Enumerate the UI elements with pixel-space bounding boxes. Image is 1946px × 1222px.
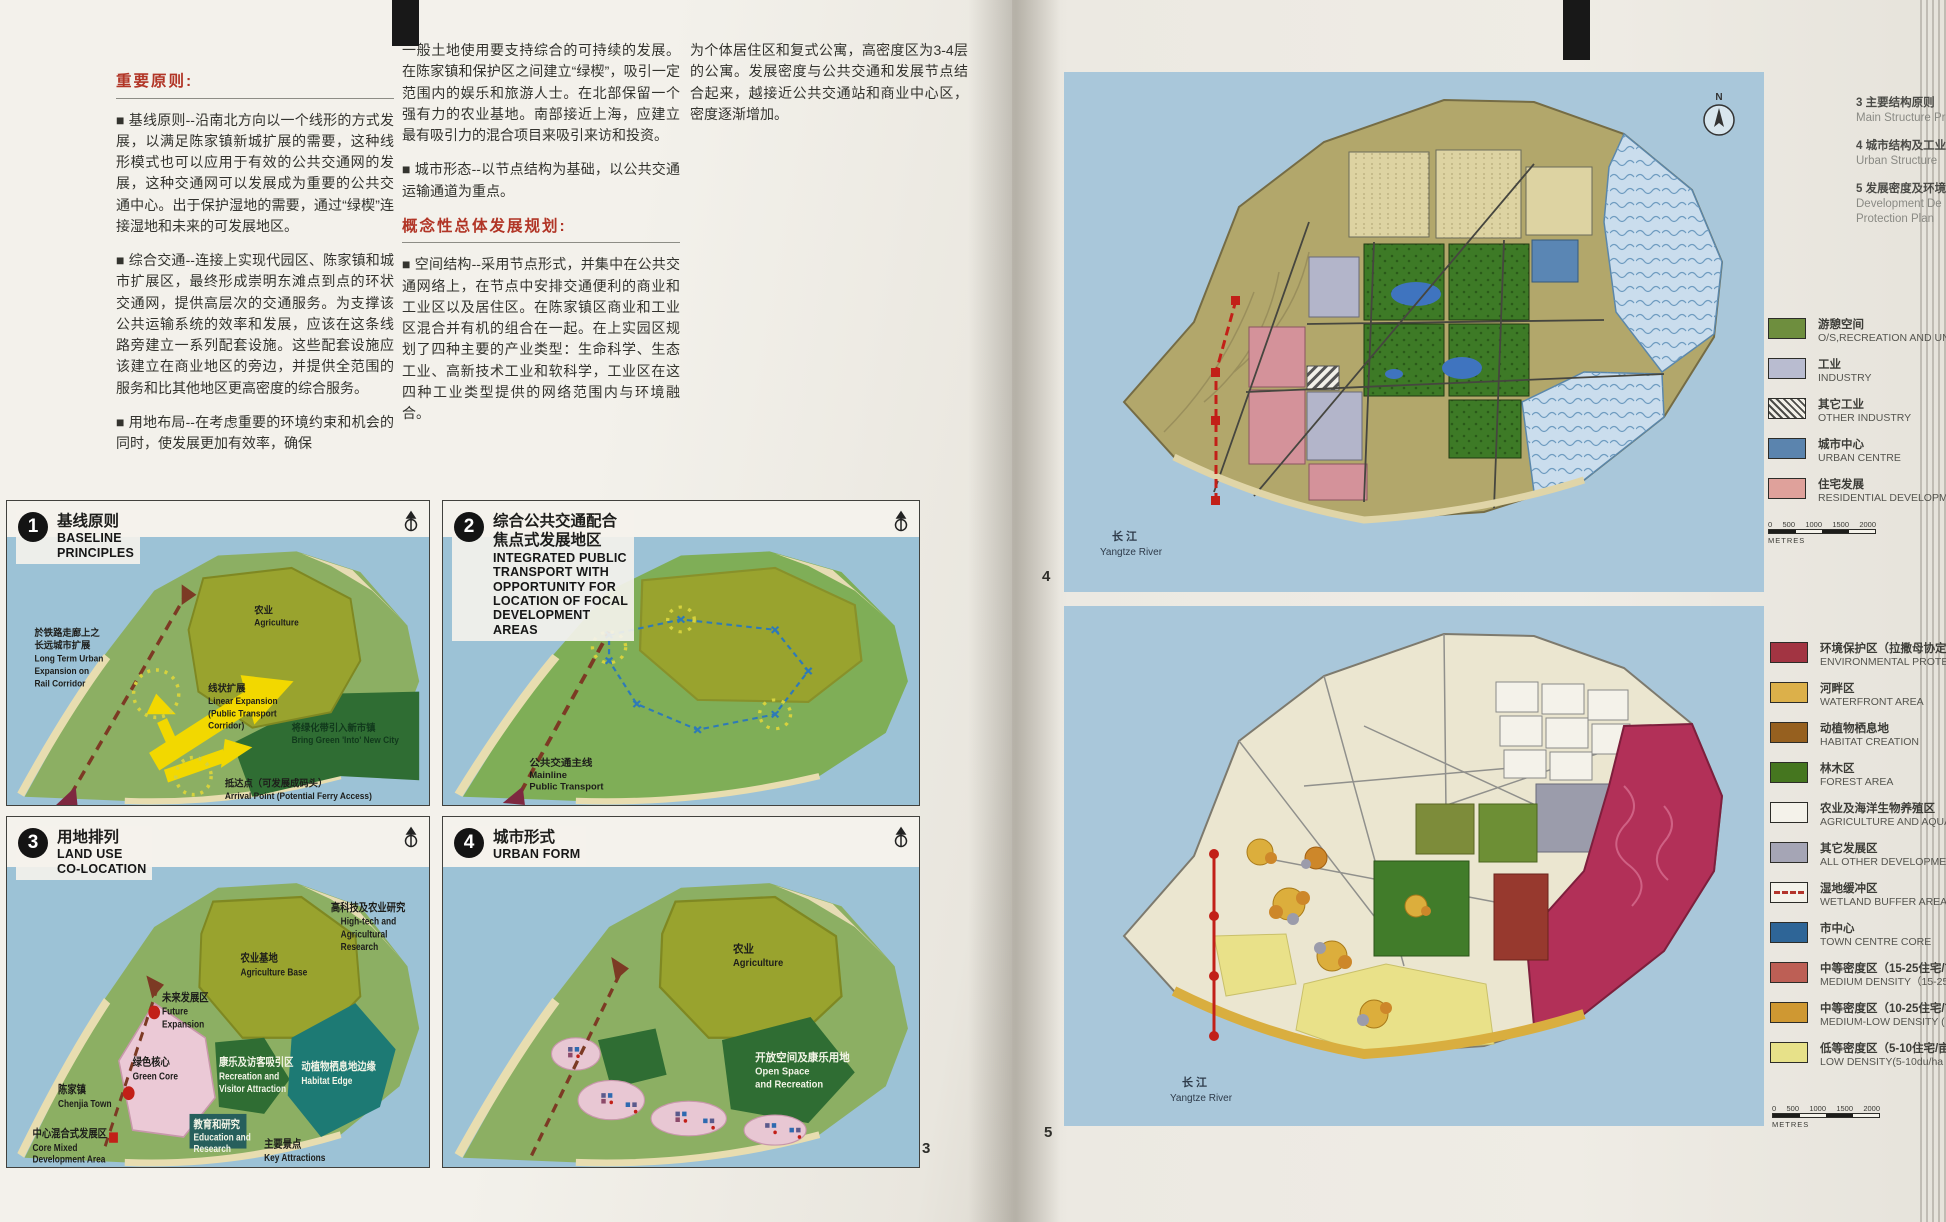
legend-swatch [1770,1042,1808,1063]
label-future-expansion: 未来发展区 [161,990,208,1004]
north-arrow-icon [402,825,420,854]
section-heading-concept-plan: 概念性总体发展规划: [402,215,680,244]
legend-swatch [1770,722,1808,743]
legend-swatch [1768,478,1806,499]
panel-4-illustration: 农业 Agriculture 开放空间及康乐用地 Open Space and … [443,867,919,1167]
svg-text:Green Core: Green Core [133,1071,178,1082]
river-label-zh: 长 江 [1112,529,1137,543]
svg-text:Visitor Attraction: Visitor Attraction [219,1083,286,1094]
structure-plan-map-svg: N 长 江 Yangtze River [1064,72,1764,592]
svg-text:Research: Research [193,1143,231,1154]
mini-map-panel-3: 3 用地排列 LAND USE CO-LOCATION 农业基地 Agricul… [6,816,430,1168]
svg-text:Core Mixed: Core Mixed [33,1142,78,1153]
paragraph: ■ 城市形态--以节点结构为基础，以公共交通运输通道为重点。 [402,159,680,202]
legend-swatch [1770,922,1808,943]
panel-title-zh: 城市形式 [493,828,580,847]
label-recreation-visitor: 康乐及访客吸引区 [219,1055,293,1069]
panel-3-illustration: 农业基地 Agriculture Base 高科技及农业研究 High-tech… [7,867,429,1167]
legend-row: 低等密度区（5-10住宅/亩LOW DENSITY(5-10du/ha [1770,1042,1946,1070]
svg-text:Chenjia Town: Chenjia Town [58,1098,112,1109]
paragraph: 一般土地使用要支持综合的可持续的发展。在陈家镇和保护区之间建立“绿楔”，吸引一定… [402,40,680,146]
figure-number-4: 4 [1042,568,1050,585]
figure-notes: 3 主要结构原则 Main Structure Pr 4 城市结构及工业 Urb… [1856,96,1946,240]
svg-text:Research: Research [341,941,379,952]
svg-text:Public Transport: Public Transport [529,782,603,792]
legend-row: 林木区FOREST AREA [1770,762,1893,790]
bookmark-tab-left [392,0,419,46]
legend-row: 中等密度区（10-25住宅/亩MEDIUM-LOW DENSITY ( [1770,1002,1946,1030]
panel-number-badge: 4 [454,828,484,858]
label-rail-corridor: 於铁路走廊上之 [34,627,101,639]
label-core-mixed: 中心混合式发展区 [33,1126,107,1140]
legend-row: 动植物栖息地HABITAT CREATION [1770,722,1919,750]
body-text-column-3: 为个体居住区和复式公寓，高密度区为3-4层的公寓。发展密度与公共交通和发展节点结… [690,40,968,138]
svg-text:Linear Expansion: Linear Expansion [208,696,277,706]
paragraph: ■ 用地布局--在考虑重要的环境约束和机会的同时，使发展更加有效率，确保 [116,412,394,455]
svg-text:Agricultural: Agricultural [341,929,388,940]
legend-swatch [1770,802,1808,823]
legend-structure-plan: 游憩空间O/S,RECREATION AND UNDEV 工业INDUSTRY … [1768,318,1946,518]
panel-title-zh: 综合公共交通配合 [493,512,628,531]
paragraph: ■ 综合交通--连接上实现代园区、陈家镇和城市扩展区，最终形成崇明东滩点到点的环… [116,250,394,399]
svg-text:Development Area: Development Area [33,1154,107,1165]
svg-text:长远城市扩展: 长远城市扩展 [34,639,90,651]
legend-swatch [1770,682,1808,703]
panel-title-zh: 基线原则 [57,512,134,531]
svg-text:Bring Green 'Into' New City: Bring Green 'Into' New City [292,735,399,745]
legend-density-plan: 环境保护区（拉撒母协定湿地ENVIRONMENTAL PROTECT 河畔区WA… [1770,642,1946,1082]
label-hightech: 高科技及农业研究 [331,900,405,914]
svg-text:Corridor): Corridor) [208,721,244,731]
legend-swatch [1770,762,1808,783]
label-agriculture-zh: 农业 [732,942,754,955]
north-arrow-icon [892,509,910,538]
label-habitat-edge: 动植物栖息地边缘 [301,1059,376,1073]
legend-row: 城市中心URBAN CENTRE [1768,438,1901,466]
legend-row: 中等密度区（15-25住宅/亩MEDIUM DENSITY（15-25 [1770,962,1946,990]
label-agriculture-zh: 农业 [253,604,273,616]
panel-4-header: 4 城市形式 URBAN FORM [452,826,586,866]
label-linear-expansion: 线状扩展 [208,682,246,694]
label-arrival-point: 抵达点（可发展成码头） [225,777,327,789]
panel-title-en: BASELINE [57,531,134,545]
svg-text:Future: Future [162,1006,188,1017]
panel-title-zh: 用地排列 [57,828,146,847]
panel-3-header: 3 用地排列 LAND USE CO-LOCATION [16,826,152,880]
legend-swatch [1768,318,1806,339]
section-heading-important-principles: 重要原则: [116,70,394,99]
legend-row: 其它发展区ALL OTHER DEVELOPMEN [1770,842,1946,870]
density-plan-map-svg: 长 江 Yangtze River [1064,606,1764,1126]
svg-text:Open Space: Open Space [755,1067,810,1078]
label-chenjia-town: 陈家镇 [58,1082,86,1096]
page-number-left: 3 [922,1140,930,1157]
svg-text:Recreation and: Recreation and [219,1071,279,1082]
scale-bar-segments [1768,529,1876,534]
scale-bar-segments [1772,1113,1880,1118]
legend-swatch [1770,642,1808,663]
legend-row: 湿地缓冲区WETLAND BUFFER AREA ( [1770,882,1946,910]
svg-text:and Recreation: and Recreation [755,1079,823,1090]
svg-text:High-tech and: High-tech and [341,916,397,927]
legend-swatch-hatched [1768,398,1806,419]
label-agriculture-en: Agriculture [733,958,784,969]
label-mainline-zh: 公共交通主线 [529,756,593,769]
river-label-en: Yangtze River [1100,547,1163,558]
mini-map-panel-4: 4 城市形式 URBAN FORM 农业 Agr [442,816,920,1168]
label-green-core: 绿色核心 [133,1055,171,1069]
river-label-zh: 长 江 [1182,1075,1207,1089]
density-plan-map: 长 江 Yangtze River [1064,606,1764,1126]
legend-row: 农业及海洋生物养殖区AGRICULTURE AND AQUA [1770,802,1946,830]
panel-1-header: 1 基线原则 BASELINE PRINCIPLES [16,510,140,564]
label-key-attractions: 主要景点 [264,1137,301,1151]
svg-text:Education and: Education and [193,1132,250,1143]
north-letter: N [1715,92,1722,103]
panel-2-header: 2 综合公共交通配合 焦点式发展地区 INTEGRATED PUBLIC TRA… [452,510,634,641]
note-5: 5 发展密度及环境 Development De Protection Plan [1856,182,1946,227]
svg-text:Agriculture Base: Agriculture Base [241,967,308,978]
svg-text:Expansion: Expansion [162,1019,204,1030]
panel-number-badge: 3 [18,828,48,858]
label-open-space: 开放空间及康乐用地 [755,1051,850,1064]
svg-text:(Public Transport: (Public Transport [208,708,277,718]
panel-title-zh: 焦点式发展地区 [493,531,628,550]
note-3: 3 主要结构原则 Main Structure Pr [1856,96,1946,126]
legend-row: 游憩空间O/S,RECREATION AND UNDEV [1768,318,1946,346]
label-agriculture-base: 农业基地 [240,951,279,965]
legend-swatch [1770,842,1808,863]
body-text-column-2: 一般土地使用要支持综合的可持续的发展。在陈家镇和保护区之间建立“绿楔”，吸引一定… [402,40,680,438]
svg-text:Long Term Urban: Long Term Urban [34,654,103,664]
svg-text:Habitat Edge: Habitat Edge [301,1075,352,1086]
legend-row: 环境保护区（拉撒母协定湿地ENVIRONMENTAL PROTECT [1770,642,1946,670]
legend-row: 河畔区WATERFRONT AREA [1770,682,1924,710]
paragraph: ■ 空间结构--采用节点形式，并集中在公共交通网络上，在节点中安排交通便利的商业… [402,254,680,424]
paragraph: 为个体居住区和复式公寓，高密度区为3-4层的公寓。发展密度与公共交通和发展节点结… [690,40,968,125]
mini-map-panel-1: 1 基线原则 BASELINE PRINCIPLES 农业 Agricultur… [6,500,430,806]
legend-row: 工业INDUSTRY [1768,358,1871,386]
legend-row: 其它工业OTHER INDUSTRY [1768,398,1911,426]
river-label-en: Yangtze River [1170,1093,1233,1104]
scale-bar: 0500100015002000 METRES [1772,1104,1922,1129]
figure-number-5: 5 [1044,1124,1052,1141]
north-arrow-icon [402,509,420,538]
label-bring-green: 将绿化带引入新市镇 [292,722,376,734]
svg-text:Rail Corridor: Rail Corridor [34,678,86,688]
svg-text:Mainline: Mainline [529,770,567,780]
panel-number-badge: 2 [454,512,484,542]
label-agriculture-en: Agriculture [254,617,299,627]
label-education-research: 教育和研究 [193,1117,240,1131]
panel-1-illustration: 农业 Agriculture 於铁路走廊上之 长远城市扩展 Long Term … [7,537,429,805]
legend-swatch-wetland-buffer [1770,882,1808,903]
body-text-column-1: 重要原则: ■ 基线原则--沿南北方向以一个线形的方式发展，以满足陈家镇新城扩展… [116,70,394,468]
svg-text:Arrival Point (Potential Ferry: Arrival Point (Potential Ferry Access) [225,791,372,801]
svg-text:Expansion on: Expansion on [34,666,89,676]
north-arrow-icon [892,825,910,854]
note-4: 4 城市结构及工业 Urban Structure [1856,139,1946,169]
legend-swatch [1770,1002,1808,1023]
legend-swatch [1768,358,1806,379]
mini-map-panel-2: 2 综合公共交通配合 焦点式发展地区 INTEGRATED PUBLIC TRA… [442,500,920,806]
legend-swatch [1770,962,1808,983]
legend-row: 住宅发展RESIDENTIAL DEVELOPMENT [1768,478,1946,506]
panel-title-en: PRINCIPLES [57,546,134,560]
book-spread-photo: { "left_page": { "page_number": "3", "te… [0,0,1946,1222]
paragraph: ■ 基线原则--沿南北方向以一个线形的方式发展，以满足陈家镇新城扩展的需要，这种… [116,110,394,238]
scale-bar: 0500100015002000 METRES [1768,520,1918,545]
legend-swatch [1768,438,1806,459]
legend-row: 市中心TOWN CENTRE CORE [1770,922,1931,950]
structure-plan-map: N 长 江 Yangtze River [1064,72,1764,592]
svg-text:Key Attractions: Key Attractions [264,1153,325,1164]
bookmark-tab-right [1563,0,1590,60]
panel-number-badge: 1 [18,512,48,542]
